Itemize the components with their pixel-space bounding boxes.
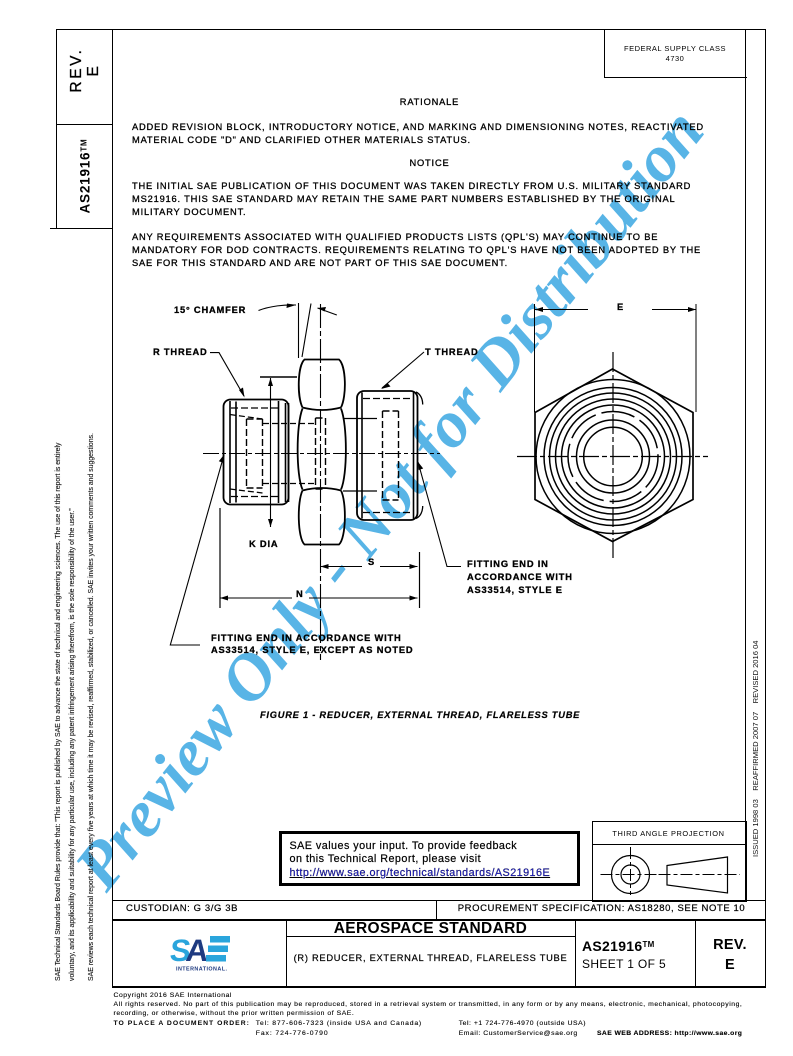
svg-text:A: A bbox=[184, 933, 210, 968]
svg-text:INTERNATIONAL.: INTERNATIONAL. bbox=[176, 967, 227, 973]
